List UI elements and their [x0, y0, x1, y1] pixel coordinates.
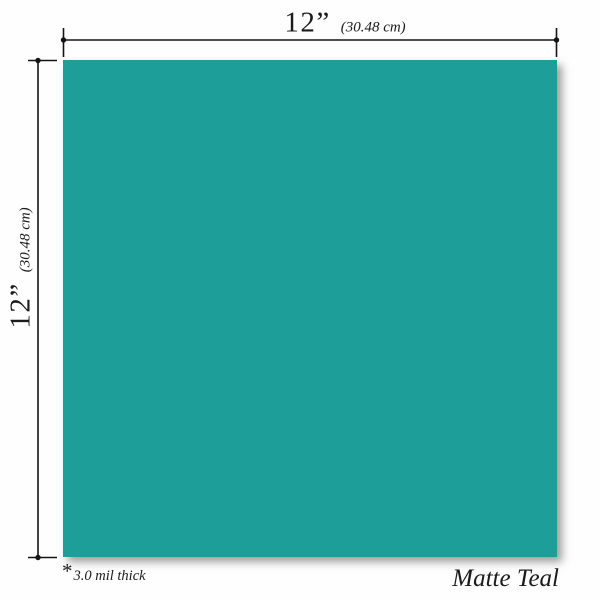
height-top-endpoint-dot	[35, 58, 40, 63]
width-dimension-label: 12” (30.48 cm)	[284, 9, 405, 38]
thickness-footnote: * 3.0 mil thick	[62, 562, 146, 585]
thickness-text: 3.0 mil thick	[73, 562, 146, 585]
color-name-label: Matte Teal	[452, 565, 559, 593]
height-bottom-endpoint-dot	[35, 555, 40, 560]
height-value: 12”	[7, 282, 36, 328]
product-dimension-diagram: 12” (30.48 cm) 12” (30.48 cm) * 3.0 mil …	[0, 0, 600, 600]
height-metric-value: (30.48 cm)	[19, 207, 34, 272]
vinyl-swatch	[63, 60, 557, 557]
width-right-endpoint-dot	[554, 37, 559, 42]
width-value: 12”	[284, 9, 330, 38]
asterisk-marker: *	[62, 562, 73, 581]
width-metric-value: (30.48 cm)	[341, 21, 406, 36]
height-dimension-label: 12” (30.48 cm)	[7, 207, 36, 328]
width-left-endpoint-dot	[61, 37, 66, 42]
